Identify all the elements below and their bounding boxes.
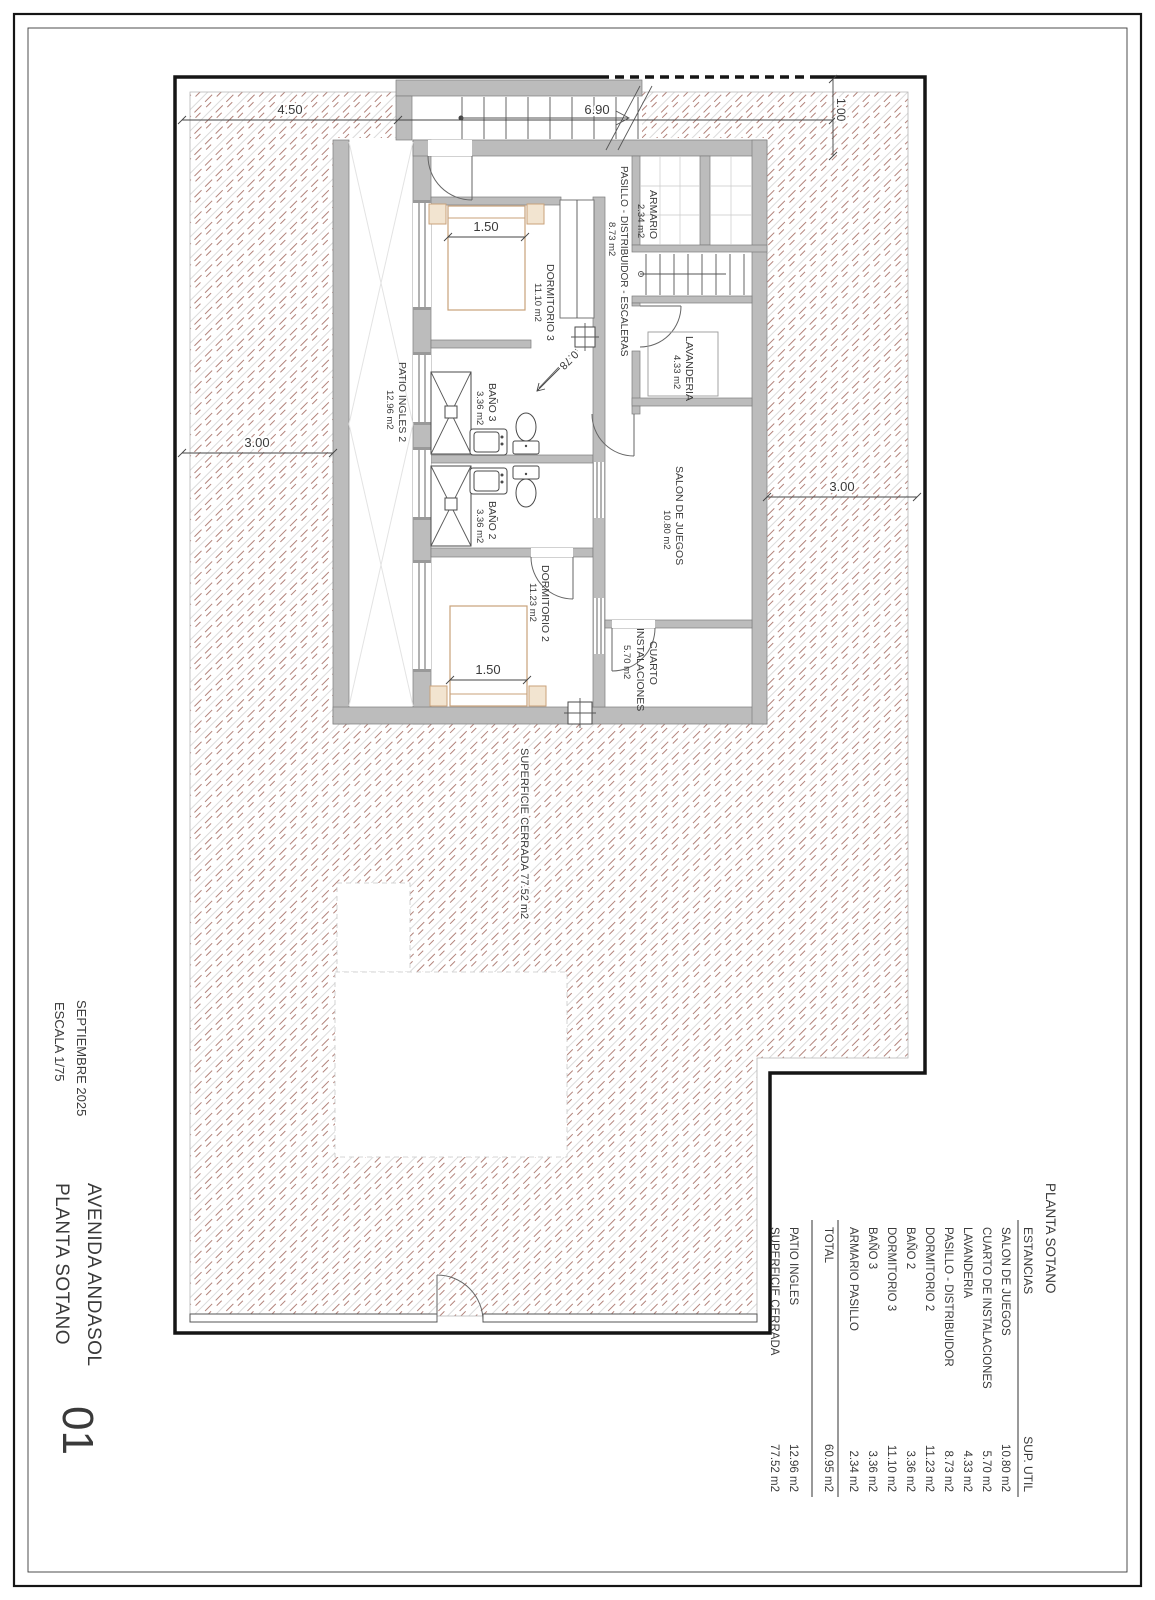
gap-dorm2-door xyxy=(531,548,573,557)
dim-bed2: 1.50 xyxy=(475,662,500,677)
table-total-value: 60.95 m2 xyxy=(822,1444,834,1492)
col-header-room: ESTANCIAS xyxy=(1021,1227,1035,1294)
table-row-value: 5.70 m2 xyxy=(980,1450,992,1492)
nightstand xyxy=(529,686,546,706)
wall-stair-top xyxy=(396,80,642,96)
label-bano3-area: 3.36 m2 xyxy=(474,391,485,425)
label-bano3: BAÑO 3 xyxy=(486,383,499,422)
nightstand xyxy=(429,204,446,224)
gap-entry-door xyxy=(428,140,472,156)
sheet-date: SEPTIEMBRE 2025 xyxy=(74,1000,89,1116)
table-row: SALON DE JUEGOS xyxy=(999,1227,1011,1336)
sheet-scale: ESCALA 1/75 xyxy=(52,1002,67,1082)
table-row-value: 11.10 m2 xyxy=(885,1445,897,1492)
label-cuarto-1: CUARTO xyxy=(647,641,659,685)
wall-lavanderia-left-a xyxy=(632,303,640,306)
wall-exterior-right xyxy=(752,140,767,724)
dim-bed3: 1.50 xyxy=(473,219,498,234)
table-row-value: 3.36 m2 xyxy=(904,1450,916,1492)
label-pasillo-area: 8.73 m2 xyxy=(606,222,617,256)
table-row-value: 4.33 m2 xyxy=(961,1450,973,1492)
wall-dorm3-bano3 xyxy=(431,340,531,348)
label-bano2: BAÑO 2 xyxy=(486,501,499,540)
table-row: PASILLO - DISTRIBUIDOR xyxy=(942,1227,954,1367)
window-bano2 xyxy=(413,447,431,520)
table-row: BAÑO 2 xyxy=(904,1227,917,1269)
title-block: SEPTIEMBRE 2025 ESCALA 1/75 AVENIDA ANDA… xyxy=(51,1000,104,1455)
wall-closet-bottom xyxy=(632,245,767,252)
dim-top-left: 4.50 xyxy=(277,102,302,117)
dim-left: 3.00 xyxy=(244,435,269,450)
dim-right: 3.00 xyxy=(829,479,854,494)
label-lavanderia: LAVANDERIA xyxy=(683,336,695,401)
table-row-value: 10.80 m2 xyxy=(999,1444,1011,1492)
label-salon-area: 10.80 m2 xyxy=(661,510,672,550)
dormitorio2-bed xyxy=(450,606,527,706)
sheet-number: 01 xyxy=(53,1406,102,1455)
wall-stair-cap xyxy=(396,96,412,140)
wall-bano3-bano2 xyxy=(431,455,593,463)
dim-top-center: 6.90 xyxy=(584,102,609,117)
label-dormitorio3-area: 11.10 m2 xyxy=(532,283,543,322)
legend-table: PLANTA SOTANO ESTANCIAS SUP. UTIL SALON … xyxy=(768,1183,1058,1497)
window-corridor-a xyxy=(594,462,604,518)
label-cuarto-area: 5.70 m2 xyxy=(621,645,632,679)
wall-closet-divider xyxy=(700,156,710,245)
label-cuarto-2: INSTALACIONES xyxy=(634,628,646,711)
table-row: DORMITORIO 2 xyxy=(923,1227,935,1311)
table-row: ARMARIO PASILLO xyxy=(847,1227,859,1331)
table-row-value: 3.36 m2 xyxy=(866,1450,878,1492)
label-dormitorio2: DORMITORIO 2 xyxy=(539,565,551,642)
table-title: PLANTA SOTANO xyxy=(1043,1183,1058,1294)
window-bano3 xyxy=(413,352,431,425)
label-armario: ARMARIO xyxy=(647,190,659,239)
window-corridor-b xyxy=(594,598,604,654)
cutout-small xyxy=(337,883,410,972)
label-superficie-cerrada: SUPERFICIE CERRADA 77.52 m2 xyxy=(518,748,530,919)
label-bano2-area: 3.36 m2 xyxy=(474,509,485,543)
table-row: BAÑO 3 xyxy=(866,1227,879,1269)
dim-top-right: 1.00 xyxy=(834,98,848,122)
wall-stair-lavanderia xyxy=(632,296,752,303)
column-marker-icon xyxy=(571,323,599,351)
label-patio-area: 12.96 m2 xyxy=(384,390,395,430)
wall-lavanderia-left-b xyxy=(632,351,640,405)
label-lavanderia-area: 4.33 m2 xyxy=(671,355,682,389)
label-dormitorio3: DORMITORIO 3 xyxy=(544,264,556,341)
label-armario-area: 2.34 m2 xyxy=(635,204,646,238)
plan-title: PLANTA SOTANO xyxy=(51,1183,72,1345)
table-extra-value: 77.52 m2 xyxy=(768,1444,780,1492)
cutout-large xyxy=(335,972,567,1157)
table-row-value: 11.23 m2 xyxy=(923,1445,935,1492)
table-row: CUARTO DE INSTALACIONES xyxy=(980,1227,992,1389)
gap-cuarto-door xyxy=(612,620,655,628)
wall-salon-stub xyxy=(632,406,640,414)
window-dorm2 xyxy=(413,560,431,672)
table-row: DORMITORIO 3 xyxy=(885,1227,897,1311)
label-pasillo: PASILLO - DISTRIBUIDOR - ESCALERAS xyxy=(618,166,629,357)
table-row: LAVANDERIA xyxy=(961,1227,973,1298)
wall-patio-retaining xyxy=(333,140,349,724)
window-dorm3 xyxy=(413,200,431,310)
drawing-sheet: 4.50 6.90 1.00 3.00 3.00 1.50 1.50 0.78 … xyxy=(0,0,1155,1600)
floor-plan-drawing: 4.50 6.90 1.00 3.00 3.00 1.50 1.50 0.78 … xyxy=(0,0,1155,1600)
table-row-value: 8.73 m2 xyxy=(942,1450,954,1492)
col-header-area: SUP. UTIL xyxy=(1021,1436,1035,1492)
label-salon: SALON DE JUEGOS xyxy=(673,466,685,565)
table-extra-label: SUPERFICIE CERRADA xyxy=(768,1227,780,1356)
fence-left xyxy=(190,1314,437,1322)
nightstand xyxy=(430,686,447,706)
label-dormitorio2-area: 11.23 m2 xyxy=(527,583,538,622)
table-extra-value: 12.96 m2 xyxy=(787,1444,799,1492)
dorm3-closet xyxy=(560,200,594,318)
table-row-value: 2.34 m2 xyxy=(847,1450,859,1492)
fence-right xyxy=(483,1314,757,1322)
table-rows: SALON DE JUEGOS 10.80 m2 CUARTO DE INSTA… xyxy=(847,1227,1011,1492)
column-marker-icon xyxy=(564,698,596,728)
nightstand xyxy=(527,204,544,224)
label-patio: PATIO INGLES 2 xyxy=(396,362,408,442)
project-title: AVENIDA ANDASOL xyxy=(83,1183,104,1367)
wall-exterior-bottom xyxy=(333,707,767,724)
table-total-label: TOTAL xyxy=(822,1227,834,1264)
table-extra-label: PATIO INGLES xyxy=(787,1227,799,1306)
